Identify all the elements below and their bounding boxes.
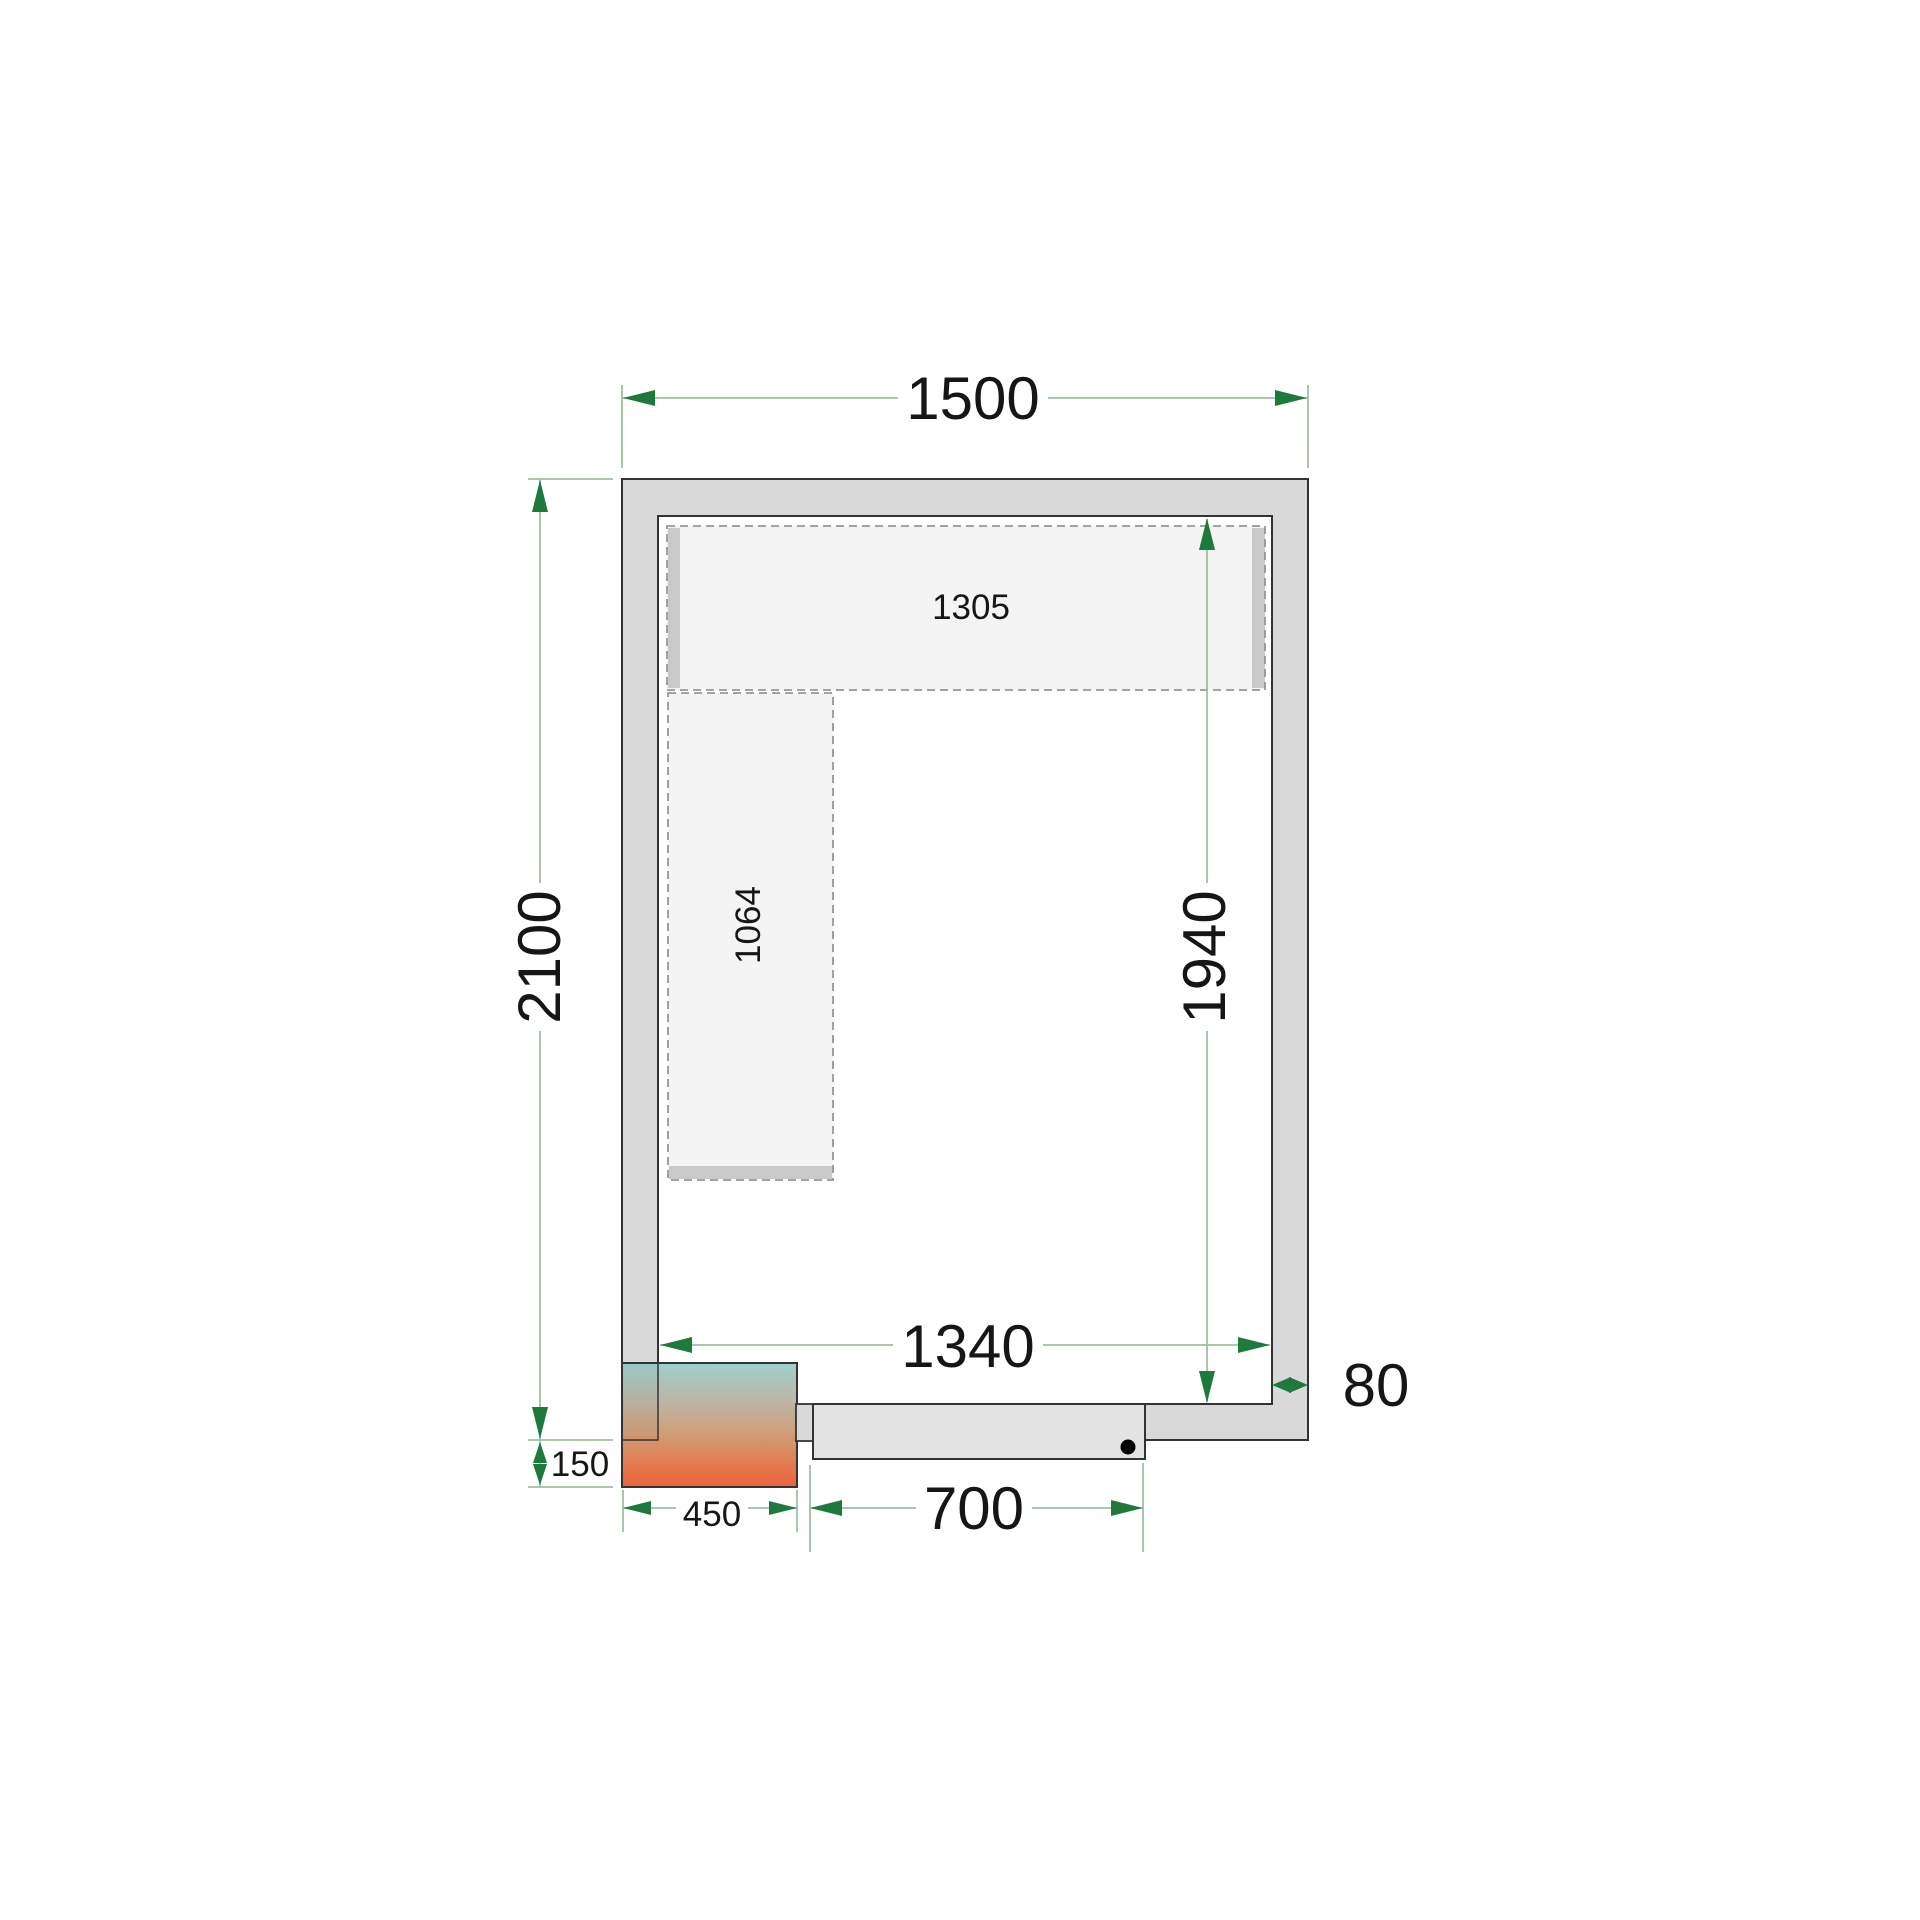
arrow-150-up-icon <box>533 1442 547 1463</box>
arrow-450-right-icon <box>769 1501 797 1515</box>
cold-room-plan-canvas: 1500 2100 1305 1064 1940 1340 80 150 450… <box>0 0 1920 1920</box>
dim-top-shelf-label: 1305 <box>932 588 1010 627</box>
dim-unit-offset-label: 150 <box>551 1445 609 1484</box>
arrow-1500-right-icon <box>1275 390 1307 406</box>
arrow-450-left-icon <box>623 1501 651 1515</box>
dim-door-width-label: 700 <box>924 1475 1024 1542</box>
cooling-unit-block <box>622 1363 797 1487</box>
door-leaf <box>813 1404 1145 1459</box>
door-jamb <box>796 1404 813 1441</box>
dim-wall-thickness-label: 80 <box>1343 1352 1410 1419</box>
dim-inner-depth-label: 1940 <box>1171 890 1238 1023</box>
dim-left-shelf-label: 1064 <box>729 886 768 964</box>
dim-inner-width-label: 1340 <box>901 1313 1034 1380</box>
arrow-1940-down-icon <box>1199 1371 1215 1403</box>
shelf-left-bottom-rail <box>669 1166 832 1179</box>
arrow-150-down-icon <box>533 1464 547 1485</box>
shelf-top-left-rail <box>668 528 680 688</box>
dim-outer-depth-label: 2100 <box>506 890 573 1023</box>
door-handle-dot <box>1121 1440 1136 1455</box>
shelf-top-right-rail <box>1252 528 1265 688</box>
cold-room-plan-drawing: 1500 2100 1305 1064 1940 1340 80 150 450… <box>0 0 1920 1920</box>
arrow-2100-up-icon <box>532 480 548 512</box>
arrow-1500-left-icon <box>623 390 655 406</box>
arrow-2100-down-icon <box>532 1407 548 1439</box>
arrow-700-right-icon <box>1111 1500 1143 1516</box>
arrow-1340-left-icon <box>660 1337 692 1353</box>
dim-unit-width-label: 450 <box>683 1495 741 1534</box>
dim-outer-width-label: 1500 <box>906 365 1039 432</box>
arrow-700-left-icon <box>810 1500 842 1516</box>
arrow-1340-right-icon <box>1238 1337 1270 1353</box>
